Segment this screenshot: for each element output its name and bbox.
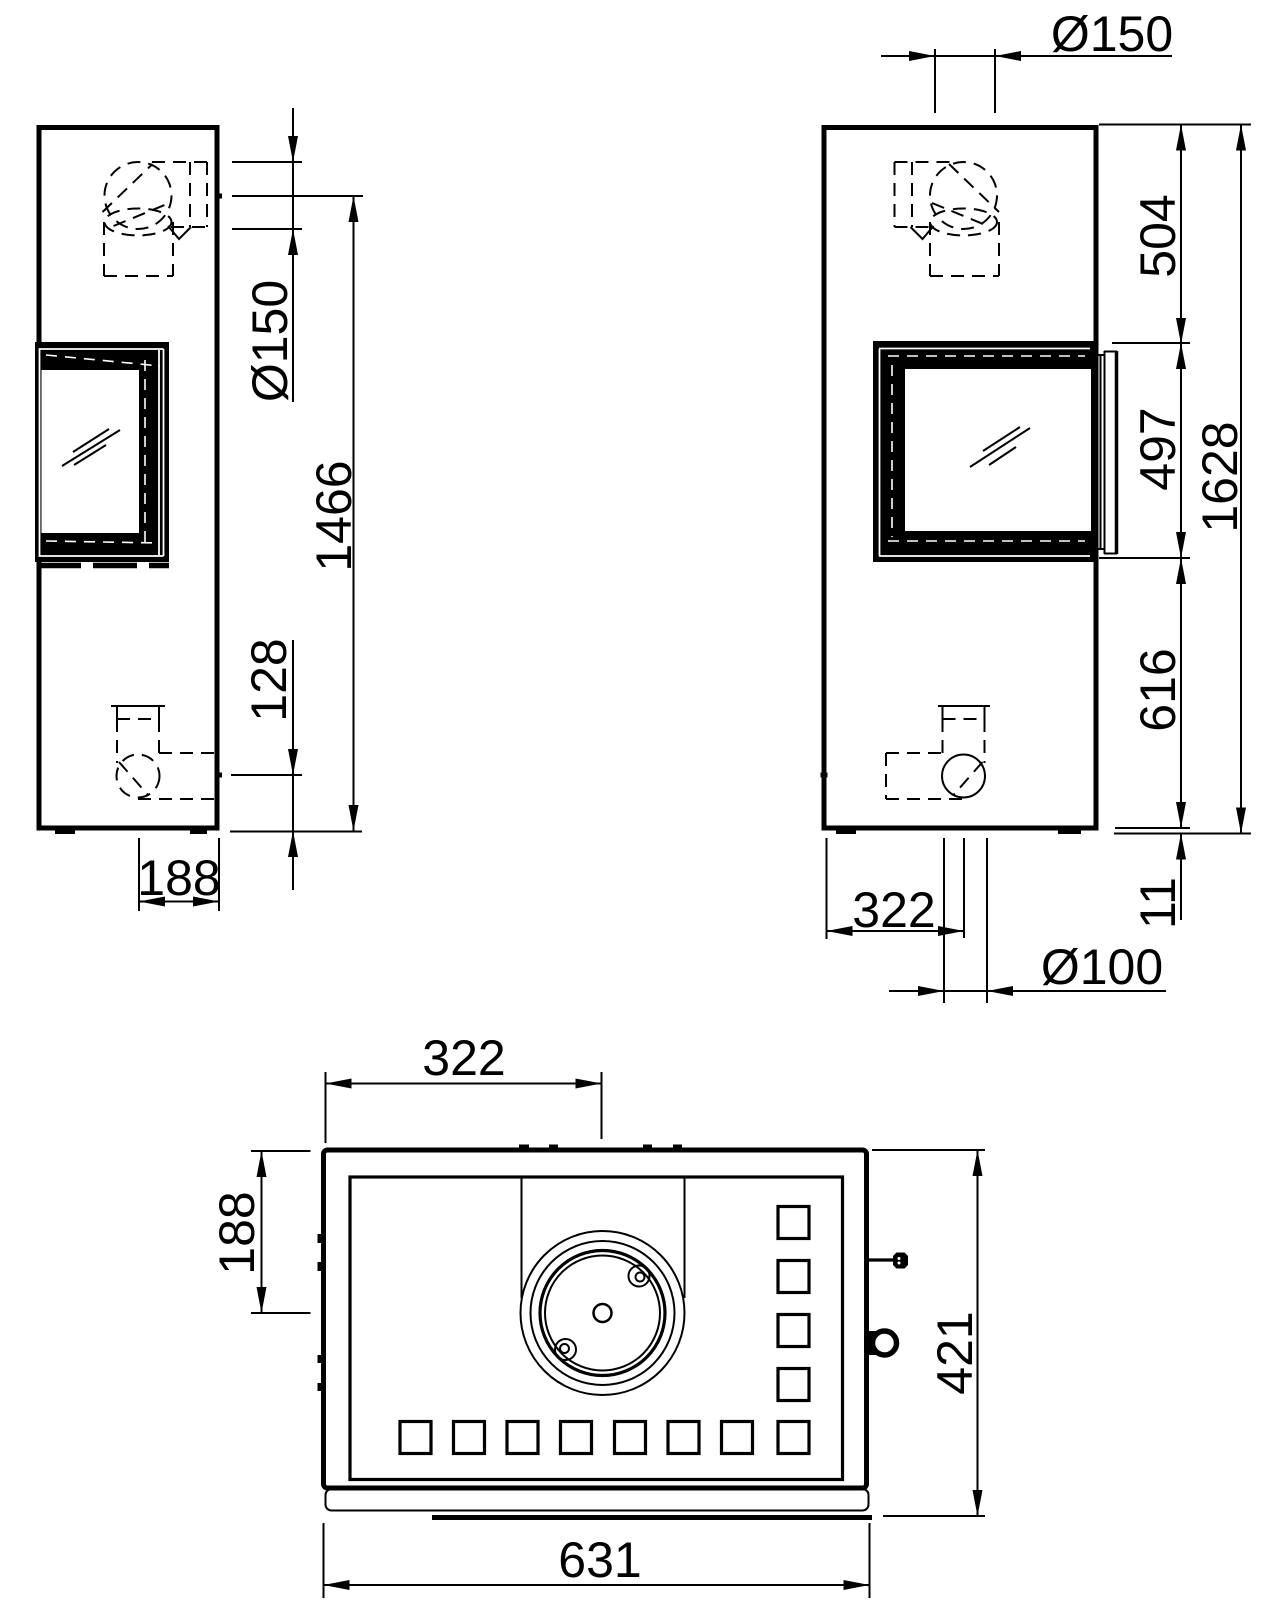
svg-text:188: 188 [137, 850, 220, 906]
svg-text:322: 322 [422, 1030, 505, 1086]
svg-text:631: 631 [558, 1532, 641, 1588]
svg-text:128: 128 [241, 638, 297, 721]
svg-text:497: 497 [1130, 407, 1186, 490]
svg-text:504: 504 [1130, 194, 1186, 277]
svg-text:Ø150: Ø150 [242, 280, 298, 402]
svg-text:Ø100: Ø100 [1041, 939, 1163, 995]
svg-text:1628: 1628 [1192, 421, 1248, 532]
svg-text:421: 421 [927, 1311, 983, 1394]
svg-text:1466: 1466 [306, 460, 362, 571]
svg-text:616: 616 [1130, 648, 1186, 731]
svg-text:Ø150: Ø150 [1051, 6, 1173, 62]
svg-text:188: 188 [209, 1191, 265, 1274]
svg-text:11: 11 [1130, 877, 1186, 929]
svg-text:322: 322 [852, 882, 935, 938]
